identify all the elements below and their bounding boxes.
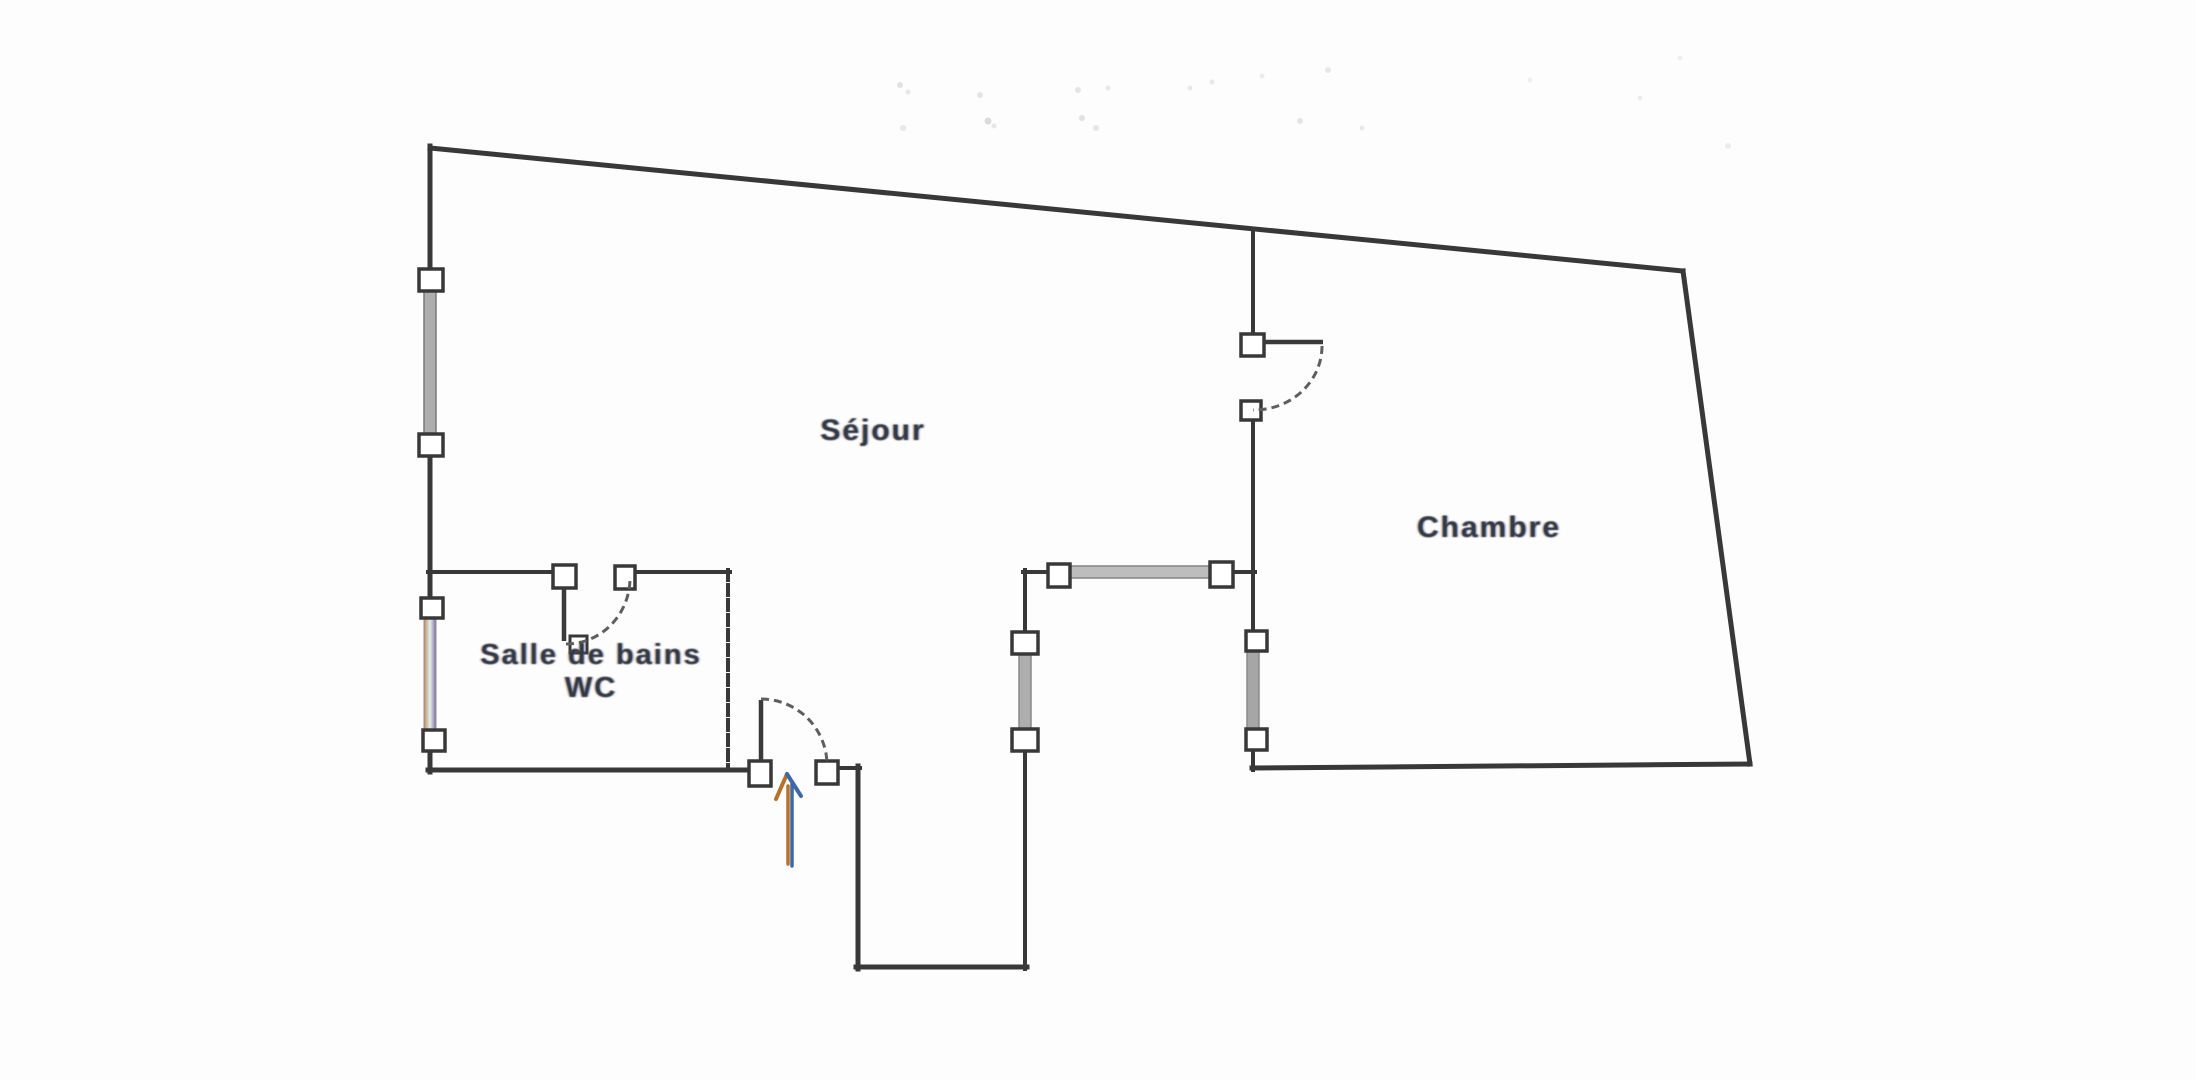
wall-top bbox=[430, 148, 1683, 271]
frame-square bbox=[1246, 729, 1267, 750]
chambre-west-window bbox=[1247, 650, 1259, 730]
frame-square bbox=[749, 761, 771, 786]
scan-noise-specks bbox=[897, 56, 1731, 150]
room-label-salle-de-bains-line2: WC bbox=[441, 672, 741, 705]
sejour-south-window bbox=[1069, 566, 1211, 578]
frame-square bbox=[1246, 631, 1267, 651]
frame-square bbox=[419, 434, 443, 456]
floor-plan-drawing bbox=[0, 0, 2196, 1080]
frame-square bbox=[1012, 632, 1038, 654]
room-label-salle-de-bains: Salle de bains WC bbox=[441, 639, 741, 705]
floor-plan-page: Séjour Chambre Salle de bains WC bbox=[0, 0, 2196, 1080]
wall-right bbox=[1683, 271, 1750, 764]
frame-square bbox=[816, 761, 838, 784]
arrow-head-left bbox=[776, 774, 787, 799]
frame-square bbox=[553, 565, 576, 588]
frame-square bbox=[1210, 562, 1233, 587]
wall-chambre-bottom bbox=[1252, 764, 1750, 768]
left-wall-window-lower bbox=[424, 617, 436, 733]
frame-square bbox=[1241, 334, 1264, 356]
room-label-salle-de-bains-line1: Salle de bains bbox=[441, 639, 741, 672]
entry-door-arc bbox=[761, 699, 827, 765]
frame-square bbox=[419, 269, 443, 291]
frame-squares bbox=[419, 269, 1267, 786]
frame-square bbox=[615, 566, 635, 589]
frame-square bbox=[421, 598, 443, 618]
frame-square bbox=[1048, 564, 1070, 587]
walls bbox=[428, 146, 1750, 969]
room-label-sejour: Séjour bbox=[723, 413, 1023, 449]
frame-square bbox=[1241, 401, 1261, 420]
frame-square bbox=[423, 730, 445, 751]
frame-square bbox=[1012, 729, 1038, 751]
room-label-chambre: Chambre bbox=[1339, 510, 1639, 546]
left-wall-window-upper bbox=[424, 291, 436, 435]
hall-west-window bbox=[1019, 653, 1031, 730]
entry-direction-arrow bbox=[776, 774, 801, 866]
